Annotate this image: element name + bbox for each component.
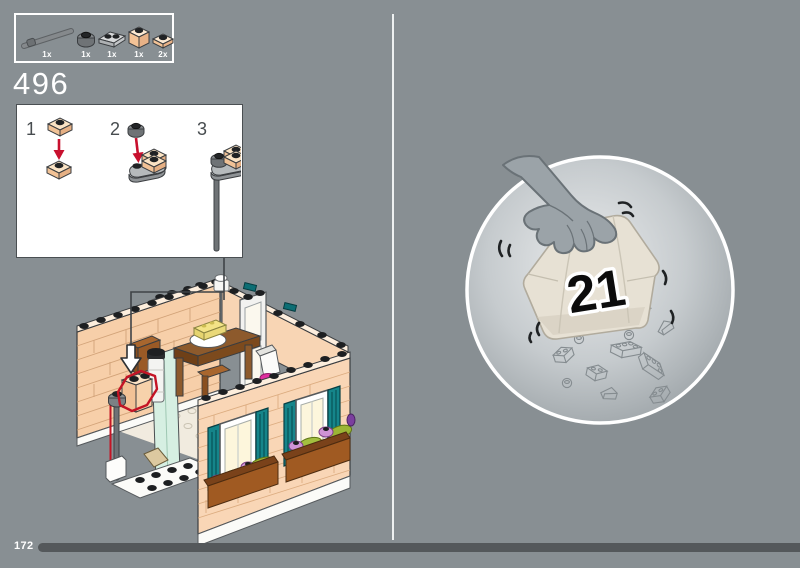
substeps-illustration: 1 2 3 <box>17 105 241 256</box>
part-count-label: 2x <box>158 50 168 60</box>
plate-1x2-rounded-icon <box>97 24 127 50</box>
substep-3-graphic <box>211 145 241 251</box>
part-item: 1x <box>127 17 151 60</box>
substeps-panel: 1 2 3 <box>16 104 243 258</box>
page-number-label: 172 <box>14 540 34 552</box>
page-divider-line <box>392 14 394 540</box>
part-item: 1x <box>97 17 127 60</box>
part-item: 2x <box>151 17 175 60</box>
substep-number: 3 <box>197 119 207 139</box>
substep-number: 2 <box>110 119 120 139</box>
part-count-label: 1x <box>134 50 144 60</box>
top-bracket-piece <box>214 275 229 291</box>
round-plate-1x1-icon <box>75 24 97 50</box>
substep-1-graphic <box>47 118 72 179</box>
part-count-label: 1x <box>81 50 91 60</box>
step-number-label: 496 <box>13 66 69 102</box>
bag-number: 21 <box>563 259 629 325</box>
plate-1x1-nougat-icon <box>151 28 175 50</box>
part-item: 1x <box>19 17 75 60</box>
brick-1x1-nougat-icon <box>127 22 151 50</box>
part-count-label: 1x <box>42 50 52 60</box>
part-item: 1x <box>75 17 97 60</box>
instruction-page: 1x 1x 1x <box>0 0 800 568</box>
bar-6l-icon <box>19 24 75 50</box>
substep-2-graphic <box>128 123 166 182</box>
parts-panel: 1x 1x 1x <box>14 13 174 63</box>
substep-number: 1 <box>26 119 36 139</box>
part-count-label: 1x <box>107 50 117 60</box>
model-illustration <box>48 248 368 548</box>
bag-number-label: 21 <box>563 259 629 325</box>
progress-scrollbar[interactable] <box>38 543 800 552</box>
front-facade <box>198 351 355 546</box>
bag-callout-circle: 21 <box>461 151 739 429</box>
